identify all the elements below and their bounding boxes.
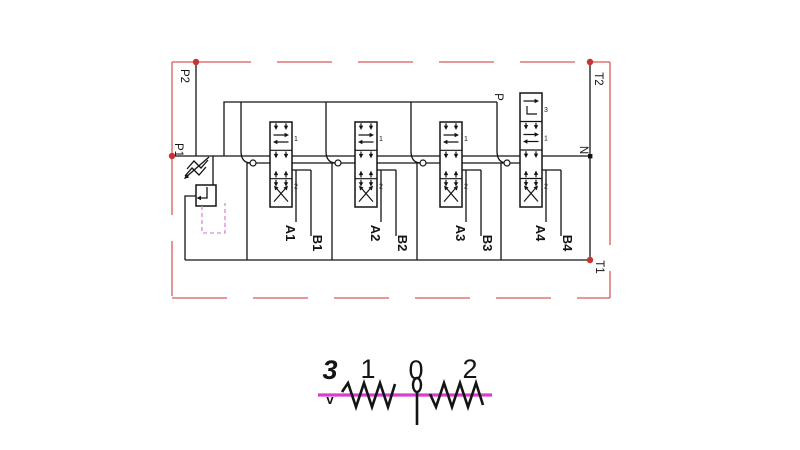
work-port-label-a2: A2 bbox=[368, 225, 383, 242]
valve-section-3: 12 bbox=[440, 122, 481, 236]
valve-section-1: 12 bbox=[270, 122, 311, 236]
position-label: 2 bbox=[379, 184, 383, 191]
check-valve-circle-1 bbox=[250, 160, 256, 166]
work-port-label-b4: B4 bbox=[560, 235, 575, 252]
work-port-label-a1: A1 bbox=[283, 225, 298, 242]
position-label: 3 bbox=[544, 107, 548, 114]
position-label: 2 bbox=[544, 184, 548, 191]
check-valve-circle-3 bbox=[420, 160, 426, 166]
work-port-label-a3: A3 bbox=[453, 225, 468, 242]
position-label: 2 bbox=[294, 184, 298, 191]
gallery-drop-3 bbox=[411, 102, 421, 163]
lever-icon bbox=[413, 378, 421, 425]
port-label-p: P bbox=[492, 93, 504, 101]
gallery-drop-2 bbox=[326, 102, 336, 163]
relief-valve-body bbox=[196, 185, 216, 206]
schematic-canvas: 121212312 P2 P1 T2 N T1 P A1 B1 A2 B2 A3… bbox=[0, 0, 800, 450]
n-junction-dot bbox=[588, 154, 592, 158]
port-dot-t1 bbox=[587, 257, 593, 263]
position-label: 1 bbox=[379, 136, 383, 143]
selector-number-3: 3 bbox=[322, 355, 337, 385]
port-label-n: N bbox=[577, 146, 589, 154]
port-label-t2: T2 bbox=[592, 72, 604, 85]
port-label-p1: P1 bbox=[172, 143, 184, 157]
work-port-label-a4: A4 bbox=[533, 225, 548, 242]
pilot-line-dashed bbox=[202, 203, 225, 233]
relief-outlet-line bbox=[185, 196, 196, 260]
handle-position-selector: 3 1 0 2 v bbox=[318, 354, 492, 425]
gallery-drop-4 bbox=[497, 102, 507, 163]
gallery-drop-1 bbox=[241, 102, 251, 163]
work-port-label-b3: B3 bbox=[480, 235, 495, 252]
hydraulic-schematic: 121212312 P2 P1 T2 N T1 P A1 B1 A2 B2 A3… bbox=[0, 0, 800, 450]
valve-section-4: 312 bbox=[520, 93, 561, 236]
pressure-relief-valve bbox=[184, 157, 225, 233]
port-label-t1: T1 bbox=[593, 260, 605, 273]
check-valve-circle-4 bbox=[504, 160, 510, 166]
work-port-label-b2: B2 bbox=[395, 235, 410, 252]
adjustable-spring-icon bbox=[185, 157, 209, 178]
selector-number-1: 1 bbox=[360, 354, 375, 384]
position-label: 1 bbox=[464, 136, 468, 143]
port-dot-t2 bbox=[587, 59, 593, 65]
selector-number-2: 2 bbox=[462, 354, 477, 384]
valve-sections-layer: 121212312 bbox=[270, 93, 561, 236]
selector-check-mark: v bbox=[326, 392, 334, 407]
position-label: 1 bbox=[294, 136, 298, 143]
valve-section-2: 12 bbox=[355, 122, 396, 236]
check-valve-circle-2 bbox=[335, 160, 341, 166]
port-label-p2: P2 bbox=[178, 69, 190, 83]
position-label: 2 bbox=[464, 184, 468, 191]
position-label: 1 bbox=[544, 136, 548, 143]
work-port-label-b1: B1 bbox=[310, 235, 325, 252]
valve-block-boundary bbox=[172, 62, 610, 298]
port-dot-p2 bbox=[193, 59, 199, 65]
work-port-labels: A1 B1 A2 B2 A3 B3 A4 B4 bbox=[283, 225, 575, 252]
